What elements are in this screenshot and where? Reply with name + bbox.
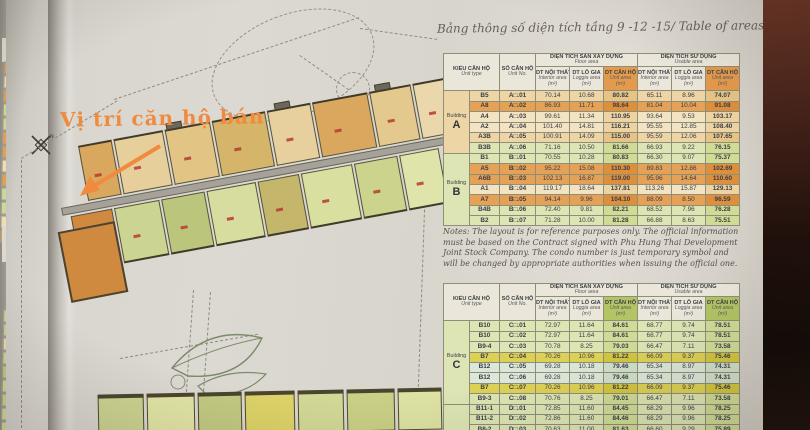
unit-type-cell: B12: [470, 362, 500, 372]
unit-type-cell: B10: [470, 321, 500, 331]
unit-area-cell: 78.51: [706, 321, 740, 331]
area-cell: 7.96: [672, 205, 706, 215]
unit-type-cell: B1: [470, 153, 500, 163]
area-cell: 11.00: [570, 425, 604, 430]
unit-no-cell: B□.05: [500, 195, 536, 205]
unit-no-cell: C□.01: [500, 321, 536, 331]
unit-no-cell: B□.01: [500, 153, 536, 163]
unit-area-cell: 103.17: [706, 112, 740, 122]
area-cell: 9.74: [672, 331, 706, 341]
area-cell: 86.93: [536, 101, 570, 111]
area-cell: 9.53: [672, 112, 706, 122]
area-table-lower: KIỂU CĂN HỘUnit type SỐ CĂN HỘUnit No. D…: [443, 283, 740, 430]
unit-type-cell: A6B: [470, 174, 500, 184]
area-cell: 14.64: [672, 174, 706, 184]
unit-no-cell: C□.08: [500, 394, 536, 404]
unit-area-cell: 104.10: [604, 195, 638, 205]
area-cell: 65.34: [638, 362, 672, 372]
area-cell: 81.04: [638, 101, 672, 111]
building-label: [444, 404, 470, 430]
area-cell: 70.76: [536, 394, 570, 404]
area-cell: 8.63: [672, 216, 706, 226]
header-interior-area: DT NỘI THẤTInterior area(m²): [536, 67, 570, 91]
plan-unit: [312, 92, 377, 157]
area-cell: 68.77: [638, 321, 672, 331]
area-cell: 16.87: [570, 174, 604, 184]
header-interior-area: DT NỘI THẤTInterior area(m²): [638, 67, 672, 91]
area-cell: 70.63: [536, 425, 570, 430]
header-unit-area: DT CĂN HỘUnit area(m²): [604, 297, 638, 321]
unit-no-cell: B□.07: [500, 216, 536, 226]
area-cell: 95.22: [536, 164, 570, 174]
sale-location-arrow: [72, 138, 167, 208]
landscape-tree-icon: [158, 316, 278, 400]
photo-background-edge: [763, 0, 810, 430]
site-boundary-dashed: [21, 160, 22, 428]
unit-area-cell: 79.46: [604, 362, 638, 372]
area-cell: 89.83: [638, 164, 672, 174]
brochure-photo: N Vị trí căn hộ bán Bảng thông số diện t…: [0, 0, 810, 430]
unit-area-cell: 84.61: [604, 331, 638, 341]
header-unit-type: KIỂU CĂN HỘUnit type: [444, 284, 500, 321]
area-cell: 10.18: [570, 362, 604, 372]
unit-label-mark: [286, 138, 293, 142]
unit-area-cell: 75.37: [706, 153, 740, 163]
area-row: B7C□.0770.2610.9681.2266.099.3775.46: [444, 383, 740, 393]
unit-label-mark: [234, 147, 241, 151]
area-cell: 10.18: [570, 373, 604, 383]
area-row: B2B□.0771.2810.0081.2866.888.6375.51: [444, 216, 740, 226]
unit-area-cell: 108.40: [706, 122, 740, 132]
area-cell: 9.22: [672, 143, 706, 153]
unit-area-cell: 81.22: [604, 352, 638, 362]
unit-area-cell: 115.00: [604, 132, 638, 142]
unit-area-cell: 107.65: [706, 132, 740, 142]
unit-type-cell: B8-2: [470, 425, 500, 430]
area-cell: 9.29: [672, 425, 706, 430]
plan-unit: [369, 84, 421, 147]
area-cell: 69.28: [536, 362, 570, 372]
unit-type-cell: B9-4: [470, 342, 500, 352]
unit-type-cell: B11-1: [470, 404, 500, 414]
area-row: B8-2D□.0370.6311.0081.6366.609.2975.89: [444, 425, 740, 430]
unit-no-cell: D□.02: [500, 414, 536, 424]
unit-area-cell: 74.31: [706, 362, 740, 372]
unit-area-cell: 75.89: [706, 425, 740, 430]
unit-area-cell: 79.46: [604, 373, 638, 383]
unit-no-cell: B□.02: [500, 164, 536, 174]
unit-area-cell: 81.63: [604, 425, 638, 430]
header-loggia-area: DT LÔ GIALoggia area(m²): [672, 67, 706, 91]
building-label: BuildingA: [444, 91, 470, 153]
unit-label-mark: [388, 119, 395, 123]
area-cell: 70.14: [536, 91, 570, 101]
plan-unit: [347, 388, 396, 430]
unit-label-mark: [322, 199, 329, 203]
area-cell: 8.97: [672, 373, 706, 383]
plan-unit: [98, 394, 145, 430]
unit-area-cell: 79.01: [604, 394, 638, 404]
plan-unit: [301, 164, 362, 229]
area-cell: 11.60: [570, 414, 604, 424]
unit-type-cell: A2: [470, 122, 500, 132]
area-cell: 10.00: [570, 216, 604, 226]
area-row: BuildingCB10C□.0172.9711.6484.6168.779.7…: [444, 321, 740, 331]
unit-type-cell: B7: [470, 383, 500, 393]
plan-unit: [147, 393, 196, 430]
area-cell: 15.08: [570, 164, 604, 174]
header-unit-type: KIỂU CĂN HỘUnit type: [444, 54, 500, 91]
header-unit-area: DT CĂN HỘUnit area(m²): [706, 67, 740, 91]
area-cell: 68.52: [638, 205, 672, 215]
area-row: A7B□.0594.149.96104.1088.098.5096.59: [444, 195, 740, 205]
unit-no-cell: B□.03: [500, 174, 536, 184]
unit-no-cell: A□.06: [500, 143, 536, 153]
unit-area-cell: 116.21: [604, 122, 638, 132]
unit-type-cell: A7: [470, 195, 500, 205]
area-cell: 100.91: [536, 132, 570, 142]
area-cell: 11.34: [570, 112, 604, 122]
plan-unit: [161, 192, 214, 255]
unit-label-mark: [276, 208, 283, 212]
area-cell: 72.97: [536, 331, 570, 341]
area-cell: 70.26: [536, 352, 570, 362]
area-cell: 66.09: [638, 383, 672, 393]
area-row: A8A□.0286.9311.7198.6481.0410.0491.08: [444, 101, 740, 111]
area-cell: 8.25: [570, 342, 604, 352]
unit-type-cell: A3B: [470, 132, 500, 142]
unit-no-cell: A□.05: [500, 132, 536, 142]
sale-location-label: Vị trí căn hộ bán: [60, 104, 265, 132]
unit-type-cell: B11-2: [470, 414, 500, 424]
unit-type-cell: B3B: [470, 143, 500, 153]
unit-area-cell: 73.58: [706, 394, 740, 404]
area-row: B7C□.0470.2610.9681.2266.099.3775.46: [444, 352, 740, 362]
area-row: A4A□.0399.6111.34110.9593.649.53103.17: [444, 112, 740, 122]
unit-type-cell: B9-3: [470, 394, 500, 404]
unit-label-mark: [429, 111, 436, 115]
unit-no-cell: C□.03: [500, 342, 536, 352]
area-row: B11-2D□.0272.8611.6084.4668.299.9678.25: [444, 414, 740, 424]
plan-unit: [398, 387, 443, 430]
area-cell: 10.28: [570, 153, 604, 163]
unit-type-cell: A5: [470, 164, 500, 174]
unit-area-cell: 110.60: [706, 174, 740, 184]
area-cell: 12.85: [672, 122, 706, 132]
area-row: B3BA□.0671.1610.5081.6666.939.2276.15: [444, 143, 740, 153]
unit-type-cell: A4: [470, 112, 500, 122]
plan-unit: [354, 156, 407, 219]
area-cell: 8.50: [672, 195, 706, 205]
area-table-upper: KIỂU CĂN HỘUnit type SỐ CĂN HỘUnit No. D…: [443, 53, 740, 226]
area-cell: 7.11: [672, 394, 706, 404]
area-cell: 94.14: [536, 195, 570, 205]
area-cell: 10.04: [672, 101, 706, 111]
area-cell: 8.25: [570, 394, 604, 404]
unit-no-cell: A□.01: [500, 91, 536, 101]
area-cell: 18.64: [570, 184, 604, 194]
area-row: B9-4C□.0370.788.2579.0366.477.1173.58: [444, 342, 740, 352]
building-label: BuildingC: [444, 321, 470, 404]
area-cell: 11.71: [570, 101, 604, 111]
area-cell: 72.85: [536, 404, 570, 414]
area-cell: 102.13: [536, 174, 570, 184]
area-row: A1B□.04119.1718.64137.81113.2615.87129.1…: [444, 184, 740, 194]
area-cell: 119.17: [536, 184, 570, 194]
area-cell: 101.40: [536, 122, 570, 132]
unit-area-cell: 110.95: [604, 112, 638, 122]
header-floor-area: DIỆN TÍCH SÀN XÂY DỰNGFloor area: [536, 284, 638, 297]
area-cell: 9.96: [570, 195, 604, 205]
area-cell: 68.29: [638, 414, 672, 424]
notes-text: Notes: The layout is for reference purpo…: [443, 227, 743, 269]
area-cell: 9.74: [672, 321, 706, 331]
unit-area-cell: 78.25: [706, 404, 740, 414]
header-usable-area: DIỆN TÍCH SỬ DỤNGUsable area: [638, 284, 740, 297]
area-cell: 9.96: [672, 404, 706, 414]
unit-area-cell: 137.81: [604, 184, 638, 194]
plan-unit: [245, 391, 296, 430]
unit-area-cell: 78.25: [706, 414, 740, 424]
header-usable-area: DIỆN TÍCH SỬ DỤNGUsable area: [638, 54, 740, 67]
plan-unit: [298, 390, 345, 430]
header-interior-area: DT NỘI THẤTInterior area(m²): [536, 297, 570, 321]
area-cell: 10.96: [570, 352, 604, 362]
unit-area-cell: 98.64: [604, 101, 638, 111]
unit-label-mark: [133, 234, 140, 238]
area-cell: 12.06: [672, 132, 706, 142]
area-cell: 71.16: [536, 143, 570, 153]
area-row: A5B□.0295.2215.08110.3089.8312.86102.69: [444, 164, 740, 174]
area-cell: 95.55: [638, 122, 672, 132]
plan-unit: [165, 121, 220, 184]
unit-type-cell: B12: [470, 373, 500, 383]
unit-type-cell: B4B: [470, 205, 500, 215]
unit-type-cell: B2: [470, 216, 500, 226]
area-cell: 15.87: [672, 184, 706, 194]
area-cell: 9.81: [570, 205, 604, 215]
area-cell: 69.28: [536, 373, 570, 383]
area-cell: 70.26: [536, 383, 570, 393]
area-cell: 95.96: [638, 174, 672, 184]
area-cell: 68.29: [638, 404, 672, 414]
plan-unit: [198, 392, 243, 430]
unit-no-cell: D□.01: [500, 404, 536, 414]
unit-area-cell: 84.61: [604, 321, 638, 331]
header-unit-area: DT CĂN HỘUnit area(m²): [706, 297, 740, 321]
unit-area-cell: 75.46: [706, 352, 740, 362]
area-cell: 71.28: [536, 216, 570, 226]
unit-no-cell: B□.06: [500, 205, 536, 215]
header-floor-area: DIỆN TÍCH SÀN XÂY DỰNGFloor area: [536, 54, 638, 67]
area-cell: 9.37: [672, 352, 706, 362]
area-row: A6BB□.03102.1316.87119.0095.9614.64110.6…: [444, 174, 740, 184]
area-cell: 70.55: [536, 153, 570, 163]
unit-no-cell: C□.02: [500, 331, 536, 341]
area-cell: 8.97: [672, 362, 706, 372]
unit-area-cell: 76.15: [706, 143, 740, 153]
area-cell: 9.37: [672, 383, 706, 393]
unit-area-cell: 82.21: [604, 205, 638, 215]
unit-label-mark: [180, 225, 187, 229]
area-cell: 8.96: [672, 91, 706, 101]
unit-type-cell: B5: [470, 91, 500, 101]
area-row: B12C□.0569.2810.1879.4665.348.9774.31: [444, 362, 740, 372]
area-row: B12C□.0669.2810.1879.4665.348.9774.31: [444, 373, 740, 383]
unit-area-cell: 73.58: [706, 342, 740, 352]
unit-area-cell: 96.59: [706, 195, 740, 205]
area-cell: 9.96: [672, 414, 706, 424]
unit-area-cell: 79.03: [604, 342, 638, 352]
unit-area-cell: 102.69: [706, 164, 740, 174]
unit-type-cell: B7: [470, 352, 500, 362]
area-cell: 99.61: [536, 112, 570, 122]
plan-unit: [114, 200, 169, 263]
area-row: BuildingBB1B□.0170.5510.2880.8366.309.07…: [444, 153, 740, 163]
header-interior-area: DT NỘI THẤTInterior area(m²): [638, 297, 672, 321]
plan-unit: [258, 174, 310, 237]
area-cell: 9.07: [672, 153, 706, 163]
area-cell: 14.09: [570, 132, 604, 142]
unit-no-cell: C□.05: [500, 362, 536, 372]
area-cell: 10.96: [570, 383, 604, 393]
unit-area-cell: 80.82: [604, 91, 638, 101]
plan-unit: [206, 182, 265, 246]
area-cell: 10.68: [570, 91, 604, 101]
unit-area-cell: 78.51: [706, 331, 740, 341]
unit-label-mark: [373, 190, 380, 194]
header-unit-no: SỐ CĂN HỘUnit No.: [500, 54, 536, 91]
unit-area-cell: 129.13: [706, 184, 740, 194]
area-row: B10C□.0272.9711.6484.6168.779.7478.51: [444, 331, 740, 341]
header-loggia-area: DT LÔ GIALoggia area(m²): [570, 67, 604, 91]
area-cell: 72.86: [536, 414, 570, 424]
unit-no-cell: C□.06: [500, 373, 536, 383]
unit-area-cell: 119.00: [604, 174, 638, 184]
area-cell: 66.47: [638, 394, 672, 404]
unit-type-cell: A1: [470, 184, 500, 194]
area-cell: 66.60: [638, 425, 672, 430]
unit-area-cell: 74.31: [706, 373, 740, 383]
unit-no-cell: C□.07: [500, 383, 536, 393]
area-cell: 66.09: [638, 352, 672, 362]
plan-unit: [267, 103, 320, 166]
area-cell: 7.11: [672, 342, 706, 352]
unit-area-cell: 84.45: [604, 404, 638, 414]
unit-label-mark: [335, 129, 342, 133]
area-cell: 12.86: [672, 164, 706, 174]
area-cell: 66.93: [638, 143, 672, 153]
unit-area-cell: 110.30: [604, 164, 638, 174]
unit-label-mark: [227, 217, 234, 221]
building-c-floorplan: [98, 387, 449, 430]
unit-area-cell: 75.46: [706, 383, 740, 393]
area-cell: 68.77: [638, 331, 672, 341]
unit-no-cell: B□.04: [500, 184, 536, 194]
area-row: B4BB□.0672.409.8182.2168.527.9676.28: [444, 205, 740, 215]
unit-area-cell: 81.66: [604, 143, 638, 153]
unit-label-mark: [184, 157, 191, 161]
unit-area-cell: 75.51: [706, 216, 740, 226]
area-cell: 70.78: [536, 342, 570, 352]
unit-no-cell: A□.04: [500, 122, 536, 132]
unit-label-mark: [417, 182, 424, 186]
unit-no-cell: C□.04: [500, 352, 536, 362]
area-cell: 88.09: [638, 195, 672, 205]
unit-area-cell: 76.28: [706, 205, 740, 215]
unit-no-cell: A□.02: [500, 101, 536, 111]
area-cell: 11.64: [570, 331, 604, 341]
header-loggia-area: DT LÔ GIALoggia area(m²): [570, 297, 604, 321]
area-row: BuildingAB5A□.0170.1410.6880.8265.118.96…: [444, 91, 740, 101]
header-unit-no: SỐ CĂN HỘUnit No.: [500, 284, 536, 321]
area-cell: 66.30: [638, 153, 672, 163]
unit-area-cell: 81.28: [604, 216, 638, 226]
area-cell: 11.60: [570, 404, 604, 414]
area-cell: 11.64: [570, 321, 604, 331]
area-row: B9-3C□.0870.768.2579.0166.477.1173.58: [444, 394, 740, 404]
unit-area-cell: 74.07: [706, 91, 740, 101]
area-row: B11-1D□.0172.8511.6084.4568.299.9678.25: [444, 404, 740, 414]
area-row: A3BA□.05100.9114.09115.0095.5912.06107.6…: [444, 132, 740, 142]
area-cell: 95.59: [638, 132, 672, 142]
area-cell: 65.11: [638, 91, 672, 101]
unit-area-cell: 80.83: [604, 153, 638, 163]
area-row: A2A□.04101.4014.81116.2195.5512.85108.40: [444, 122, 740, 132]
unit-no-cell: A□.03: [500, 112, 536, 122]
area-cell: 66.47: [638, 342, 672, 352]
area-cell: 66.88: [638, 216, 672, 226]
area-cell: 65.34: [638, 373, 672, 383]
building-label: BuildingB: [444, 153, 470, 226]
area-cell: 10.50: [570, 143, 604, 153]
header-unit-area: DT CĂN HỘUnit area(m²): [604, 67, 638, 91]
area-cell: 72.97: [536, 321, 570, 331]
unit-no-cell: D□.03: [500, 425, 536, 430]
header-loggia-area: DT LÔ GIALoggia area(m²): [672, 297, 706, 321]
unit-area-cell: 91.08: [706, 101, 740, 111]
area-cell: 14.81: [570, 122, 604, 132]
unit-type-cell: B10: [470, 331, 500, 341]
area-cell: 113.26: [638, 184, 672, 194]
unit-type-cell: A8: [470, 101, 500, 111]
area-cell: 72.40: [536, 205, 570, 215]
unit-area-cell: 84.46: [604, 414, 638, 424]
area-cell: 93.64: [638, 112, 672, 122]
unit-area-cell: 81.22: [604, 383, 638, 393]
